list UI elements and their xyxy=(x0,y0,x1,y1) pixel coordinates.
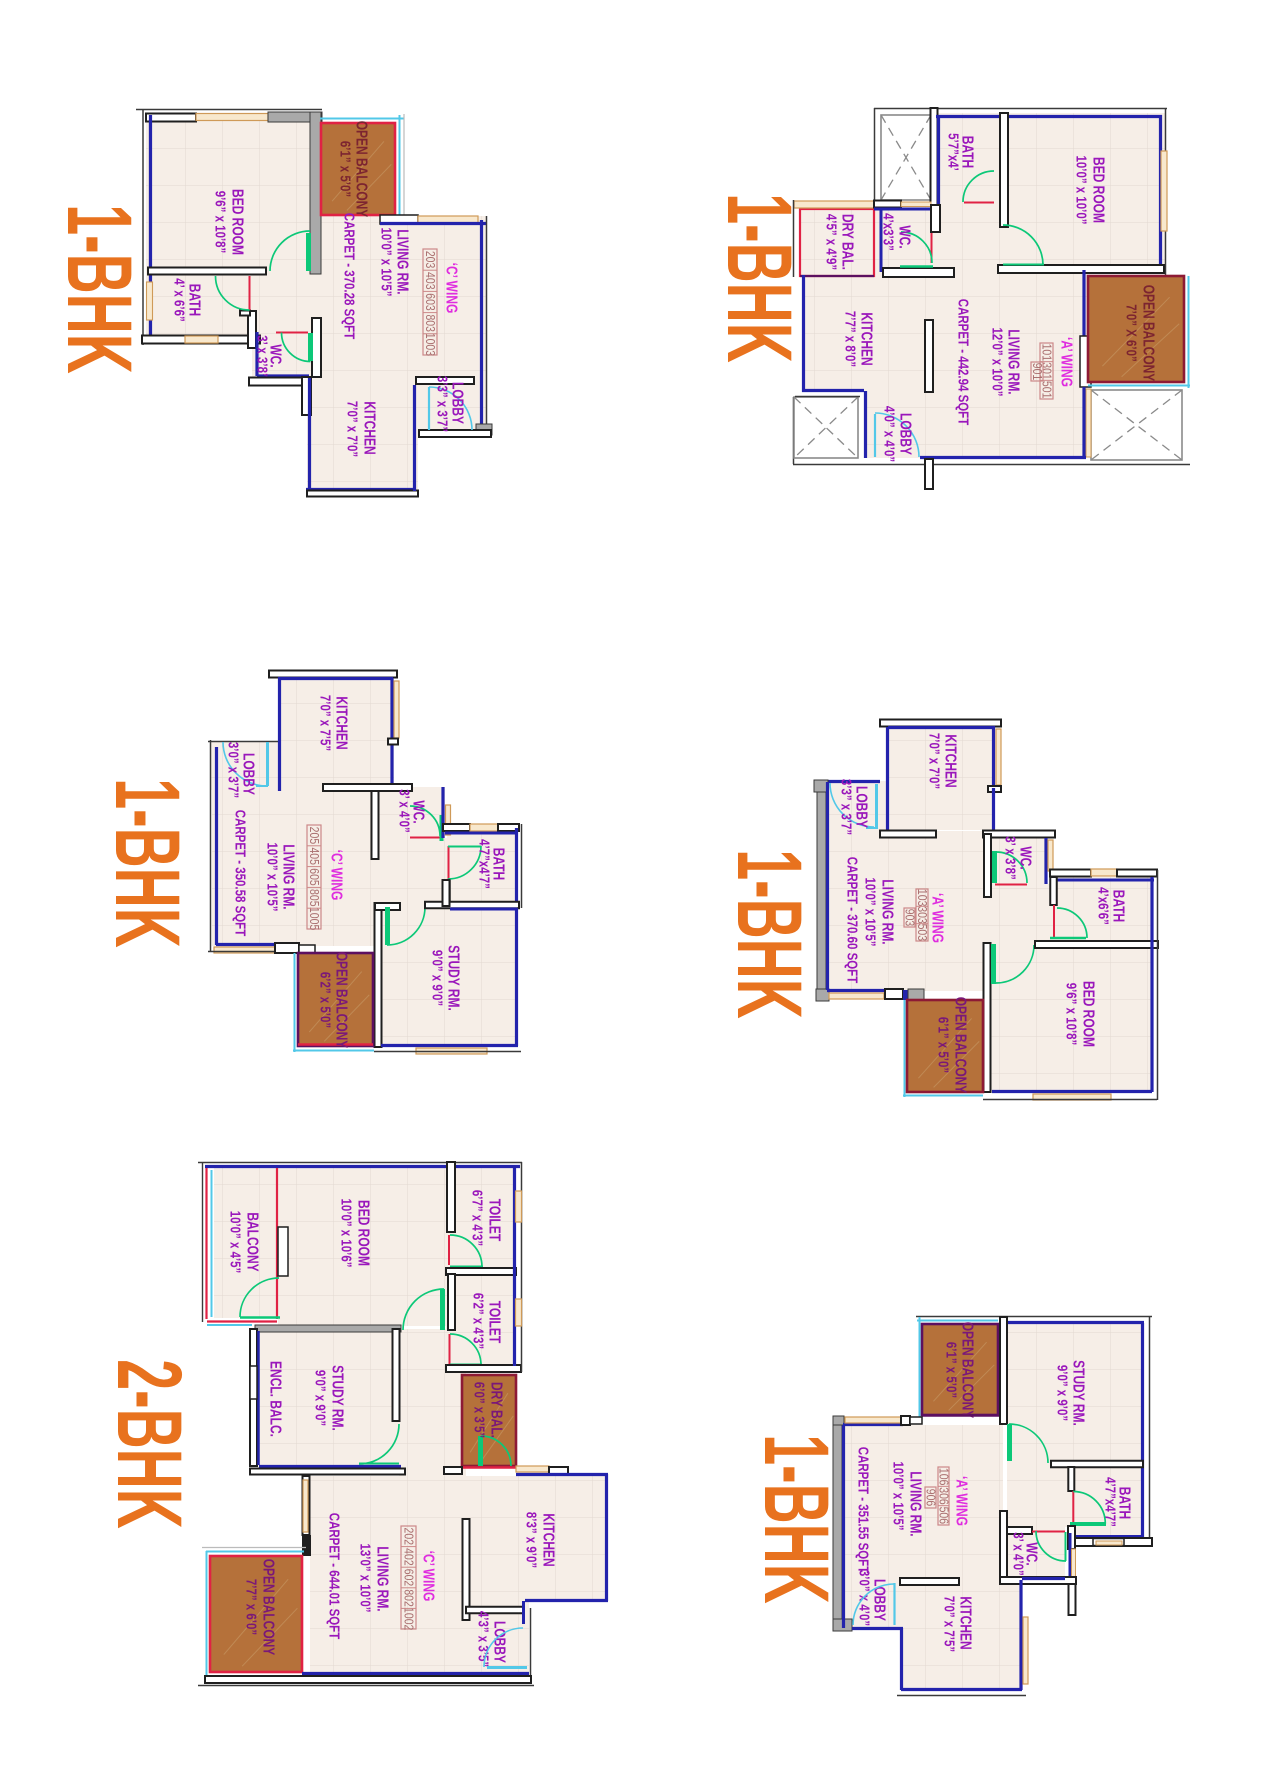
svg-text:KITCHEN: KITCHEN xyxy=(942,734,960,787)
svg-text:OPEN BALCONY: OPEN BALCONY xyxy=(333,952,351,1049)
svg-text:7’7” x 8’0”: 7’7” x 8’0” xyxy=(842,311,859,367)
svg-text:6’1” x 5’0”: 6’1” x 5’0” xyxy=(337,141,354,197)
svg-text:STUDY RM.: STUDY RM. xyxy=(329,1365,347,1431)
svg-text:DRY BAL.: DRY BAL. xyxy=(839,214,857,270)
svg-text:10’0” x 10’5”: 10’0” x 10’5” xyxy=(378,227,395,296)
svg-text:BED ROOM: BED ROOM xyxy=(1080,981,1098,1047)
svg-text:WC.: WC. xyxy=(1017,846,1035,869)
svg-text:405: 405 xyxy=(306,847,321,865)
svg-text:3’ x 3’8”: 3’ x 3’8” xyxy=(254,335,271,378)
svg-text:BED ROOM: BED ROOM xyxy=(355,1200,373,1266)
svg-text:9’6” x 10’8”: 9’6” x 10’8” xyxy=(1063,983,1080,1046)
svg-text:901: 901 xyxy=(1029,363,1044,381)
svg-text:STUDY RM.: STUDY RM. xyxy=(445,945,463,1011)
svg-text:BALCONY: BALCONY xyxy=(244,1212,262,1272)
svg-text:10’0” x 10’5”: 10’0” x 10’5” xyxy=(890,1461,907,1530)
svg-text:LIVING RM.: LIVING RM. xyxy=(1005,329,1023,394)
svg-text:10’0” x 10’5”: 10’0” x 10’5” xyxy=(862,877,879,946)
svg-text:‘C’ WING: ‘C’ WING xyxy=(328,850,346,901)
svg-text:7’0” x 7’0”: 7’0” x 7’0” xyxy=(926,733,943,789)
svg-text:OPEN BALCONY: OPEN BALCONY xyxy=(260,1559,278,1656)
svg-text:501: 501 xyxy=(1039,381,1054,399)
svg-text:1-BHK: 1-BHK xyxy=(95,778,198,948)
svg-text:805: 805 xyxy=(306,889,321,907)
svg-text:8’3” x 9’0”: 8’3” x 9’0” xyxy=(523,1512,540,1568)
svg-text:603: 603 xyxy=(422,293,437,311)
svg-text:4’0” x 4’0”: 4’0” x 4’0” xyxy=(881,406,898,462)
svg-text:10’0” x 4’5”: 10’0” x 4’5” xyxy=(227,1211,244,1274)
svg-text:STUDY RM.: STUDY RM. xyxy=(1070,1360,1088,1426)
svg-text:205: 205 xyxy=(306,827,321,845)
svg-text:3’ x 3’8”: 3’ x 3’8” xyxy=(1002,836,1019,879)
svg-text:4’x3’3”: 4’x3’3” xyxy=(880,213,897,251)
svg-text:OPEN BALCONY: OPEN BALCONY xyxy=(1140,285,1158,382)
svg-text:CARPET - 370.60 SQFT: CARPET - 370.60 SQFT xyxy=(844,857,861,983)
svg-text:LOBBY: LOBBY xyxy=(853,786,871,829)
svg-text:‘C’ WING: ‘C’ WING xyxy=(420,1551,438,1602)
svg-text:TOILET: TOILET xyxy=(486,1301,504,1344)
svg-text:4’x6’6”: 4’x6’6” xyxy=(1095,887,1112,925)
svg-text:106: 106 xyxy=(936,1468,951,1486)
svg-text:4’7”x4’7”: 4’7”x4’7” xyxy=(476,839,493,889)
svg-text:BATH: BATH xyxy=(1110,890,1128,922)
svg-text:3’0” x 4’0”: 3’0” x 4’0” xyxy=(856,1570,873,1626)
svg-text:1-BHK: 1-BHK xyxy=(717,849,820,1019)
svg-text:KITCHEN: KITCHEN xyxy=(957,1596,975,1649)
svg-text:903: 903 xyxy=(902,909,917,927)
svg-text:7’0” X 6’0”: 7’0” X 6’0” xyxy=(1123,304,1140,362)
svg-text:6’1” x 5’0”: 6’1” x 5’0” xyxy=(935,1017,952,1073)
svg-text:OPEN BALCONY: OPEN BALCONY xyxy=(959,1322,977,1419)
svg-text:LOBBY: LOBBY xyxy=(449,382,467,425)
svg-text:LOBBY: LOBBY xyxy=(897,413,915,456)
svg-text:4’5” x 4’9”: 4’5” x 4’9” xyxy=(823,214,840,270)
svg-text:KITCHEN: KITCHEN xyxy=(540,1513,558,1566)
svg-text:‘C’ WING: ‘C’ WING xyxy=(443,263,461,314)
svg-text:TOILET: TOILET xyxy=(486,1199,504,1242)
svg-text:LOBBY: LOBBY xyxy=(240,753,258,796)
svg-text:103: 103 xyxy=(914,889,929,907)
svg-text:9’0” x 9’0”: 9’0” x 9’0” xyxy=(429,950,446,1006)
svg-text:13’0” x 10’0”: 13’0” x 10’0” xyxy=(357,1543,374,1612)
svg-text:10’0” x 10’5”: 10’0” x 10’5” xyxy=(264,842,281,911)
svg-text:ENCL. BALC.: ENCL. BALC. xyxy=(267,1361,285,1437)
svg-text:7’7” x 6’0”: 7’7” x 6’0” xyxy=(243,1579,260,1635)
svg-text:9’0” x 9’0”: 9’0” x 9’0” xyxy=(312,1370,329,1426)
svg-text:LIVING RM.: LIVING RM. xyxy=(879,879,897,944)
svg-text:OPEN BALCONY: OPEN BALCONY xyxy=(353,121,371,218)
svg-text:LIVING RM.: LIVING RM. xyxy=(394,229,412,294)
svg-text:202: 202 xyxy=(401,1528,416,1546)
svg-text:506: 506 xyxy=(936,1507,951,1525)
svg-text:CARPET - 370.28 SQFT: CARPET - 370.28 SQFT xyxy=(341,213,358,339)
svg-text:5’7”x4’: 5’7”x4’ xyxy=(945,133,962,171)
svg-text:CARPET - 442.94 SQFT: CARPET - 442.94 SQFT xyxy=(955,299,972,425)
svg-text:CARPET - 351.55 SQFT: CARPET - 351.55 SQFT xyxy=(855,1447,872,1573)
svg-text:605: 605 xyxy=(306,868,321,886)
svg-text:602: 602 xyxy=(401,1569,416,1587)
svg-text:BED ROOM: BED ROOM xyxy=(1090,157,1108,223)
svg-text:6’1” x 5’0”: 6’1” x 5’0” xyxy=(943,1342,960,1398)
svg-text:803: 803 xyxy=(422,314,437,332)
svg-text:3’3” x 3’7”: 3’3” x 3’7” xyxy=(434,376,451,432)
svg-text:OPEN BALCONY: OPEN BALCONY xyxy=(952,997,970,1094)
svg-text:4’ x 6’6”: 4’ x 6’6” xyxy=(171,278,188,321)
svg-text:1002: 1002 xyxy=(401,1607,416,1630)
svg-text:WC.: WC. xyxy=(896,225,914,248)
svg-text:6’0” x 3’5”: 6’0” x 3’5” xyxy=(471,1382,488,1438)
svg-text:10’0” x 10’0”: 10’0” x 10’0” xyxy=(1073,155,1090,224)
svg-text:LIVING RM.: LIVING RM. xyxy=(374,1546,392,1611)
svg-text:BATH: BATH xyxy=(186,284,204,316)
svg-text:KITCHEN: KITCHEN xyxy=(858,312,876,365)
svg-text:4’7”x4’7”: 4’7”x4’7” xyxy=(1102,1477,1119,1527)
svg-text:9’6” x 10’8”: 9’6” x 10’8” xyxy=(212,191,229,254)
svg-text:203: 203 xyxy=(422,251,437,269)
svg-text:DRY BAL.: DRY BAL. xyxy=(488,1382,506,1438)
svg-text:1003: 1003 xyxy=(422,333,437,357)
svg-text:1-BHK: 1-BHK xyxy=(47,204,150,374)
svg-text:906: 906 xyxy=(923,1489,938,1507)
svg-text:403: 403 xyxy=(422,272,437,290)
svg-text:9’0” x 9’0”: 9’0” x 9’0” xyxy=(1054,1365,1071,1421)
svg-text:1005: 1005 xyxy=(306,907,321,931)
svg-text:3’3” x 3’7”: 3’3” x 3’7” xyxy=(838,779,855,835)
svg-text:6’2” x 4’3”: 6’2” x 4’3” xyxy=(470,1293,487,1349)
svg-text:KITCHEN: KITCHEN xyxy=(361,401,379,454)
svg-text:CARPET - 644.01 SQFT: CARPET - 644.01 SQFT xyxy=(326,1513,343,1639)
svg-text:‘A’ WING: ‘A’ WING xyxy=(953,1476,971,1526)
svg-text:10’0” x 10’6”: 10’0” x 10’6” xyxy=(338,1198,355,1267)
svg-text:101: 101 xyxy=(1039,344,1054,362)
svg-text:802: 802 xyxy=(401,1589,416,1607)
svg-text:3’ x 4’0”: 3’ x 4’0” xyxy=(396,789,413,832)
svg-text:6’2” x 5’0”: 6’2” x 5’0” xyxy=(317,972,334,1028)
svg-text:12’0” x 10’0”: 12’0” x 10’0” xyxy=(989,327,1006,396)
svg-text:6’7” x 4’3”: 6’7” x 4’3” xyxy=(469,1190,486,1246)
svg-text:7’0” x 7’5”: 7’0” x 7’5” xyxy=(317,695,334,751)
svg-text:1-BHK: 1-BHK xyxy=(707,193,810,363)
svg-text:1-BHK: 1-BHK xyxy=(744,1434,847,1604)
svg-text:‘A’ WING: ‘A’ WING xyxy=(1058,337,1076,387)
svg-text:CARPET - 350.58 SQFT: CARPET - 350.58 SQFT xyxy=(232,810,249,936)
svg-text:3’0” x 3’7”: 3’0” x 3’7” xyxy=(225,742,242,798)
svg-text:7’0” x 7’0”: 7’0” x 7’0” xyxy=(344,401,361,457)
svg-text:3’ x 4’0”: 3’ x 4’0” xyxy=(1010,1532,1027,1575)
svg-text:LIVING RM.: LIVING RM. xyxy=(280,844,298,909)
svg-text:KITCHEN: KITCHEN xyxy=(333,696,351,749)
svg-text:4’3” x 3’5”: 4’3” x 3’5” xyxy=(475,1611,492,1667)
svg-text:2-BHK: 2-BHK xyxy=(97,1359,200,1529)
svg-text:‘A’ WING: ‘A’ WING xyxy=(929,893,947,943)
svg-text:402: 402 xyxy=(401,1548,416,1566)
svg-text:BED ROOM: BED ROOM xyxy=(229,189,247,255)
svg-text:7’0” x 7’5”: 7’0” x 7’5” xyxy=(941,1596,958,1652)
